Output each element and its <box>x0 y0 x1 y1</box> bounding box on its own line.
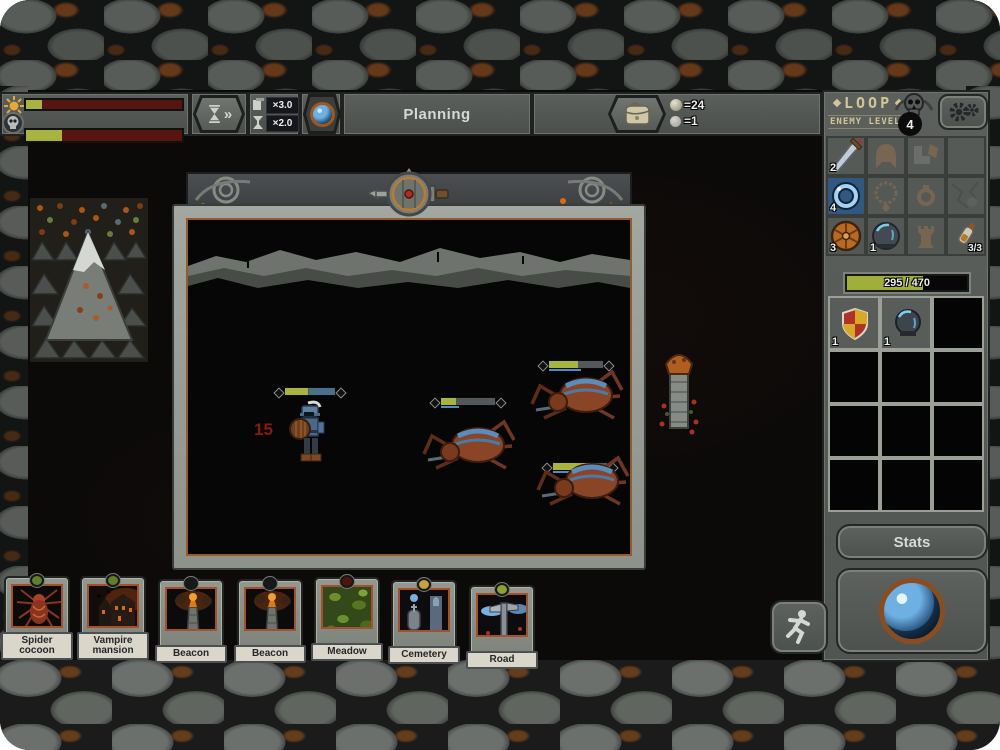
inventory-slot-empty <box>932 458 984 512</box>
mountain-silhouettes <box>188 230 630 294</box>
damage-number: 15 <box>254 420 273 440</box>
map-pillar-tile <box>656 344 702 438</box>
equip-slot-potion[interactable]: 3/3 <box>946 216 986 256</box>
card-name: Spider cocoon <box>1 632 73 660</box>
hp-bar: 295 / 470 <box>845 274 969 292</box>
inventory-slot-empty <box>828 350 880 404</box>
speed-toggle-button[interactable]: » <box>193 95 245 133</box>
time-rate-icon <box>253 116 263 129</box>
hero-health-bar <box>284 387 336 396</box>
gear-icon <box>946 100 980 124</box>
wing-ornament-left <box>192 176 256 204</box>
inventory-slot-empty <box>828 458 880 512</box>
card-rate-icon <box>252 98 264 111</box>
amulet-ghost-icon <box>868 178 904 214</box>
orb-icon <box>310 102 335 127</box>
kite-shield-icon <box>838 306 872 342</box>
card-beacon[interactable]: Beacon <box>237 579 303 663</box>
inventory-slot-shield[interactable]: 1 <box>828 296 880 350</box>
item-count: 3 <box>830 242 836 254</box>
sword-shield-emblem <box>366 166 452 222</box>
card-name: Meadow <box>311 643 383 661</box>
fast-forward-icon: » <box>224 106 230 123</box>
card-gem <box>106 574 120 587</box>
card-spider-cocoon[interactable]: Spider cocoon <box>4 576 70 660</box>
orb-resource-count: =24 <box>684 98 704 112</box>
inventory-slot-empty <box>880 458 932 512</box>
hourglass-icon <box>208 105 221 123</box>
item-count: 1 <box>832 336 838 348</box>
card-art <box>11 584 63 628</box>
hero-sprite <box>288 400 332 466</box>
enemy-level-label: ENEMY LEVEL <box>828 115 903 129</box>
game-screen: 15 <box>0 0 1000 750</box>
card-gem <box>30 574 44 587</box>
card-meadow[interactable]: Meadow <box>314 577 380 661</box>
pebble-resource-icon <box>670 116 681 127</box>
equip-slot-ghost-rook <box>906 216 946 256</box>
card-beacon[interactable]: Beacon <box>158 579 224 663</box>
retreat-button[interactable] <box>770 600 828 654</box>
hp-bar-text: 295 / 470 <box>847 276 967 290</box>
boots-ghost-icon <box>908 138 944 174</box>
enemy-level-value: 4 <box>906 117 913 132</box>
equip-slot-ring[interactable]: 4 <box>826 176 866 216</box>
rook-ghost-icon <box>908 218 944 254</box>
card-vampire-mansion[interactable]: Vampire mansion <box>80 576 146 660</box>
enemy-level-badge: 4 <box>898 112 922 136</box>
enemy-health-bar <box>440 397 496 406</box>
day-progress-bar <box>24 98 184 111</box>
settings-button[interactable] <box>938 94 988 130</box>
equip-slot-ghost-ring <box>906 176 946 216</box>
equip-slot-empty <box>946 136 986 176</box>
card-art <box>321 585 373 629</box>
hero-health-rest <box>309 388 335 395</box>
pebble-resource-count: =1 <box>684 114 698 128</box>
equip-slot-cracked <box>946 176 986 216</box>
equip-slot-ghost-helmet <box>866 136 906 176</box>
equip-slot-shield[interactable]: 3 <box>826 216 866 256</box>
card-gem <box>495 583 509 596</box>
item-count: 4 <box>830 202 836 214</box>
item-count: 2 <box>830 162 836 174</box>
battle-scene: 15 <box>186 218 632 556</box>
bag-icon <box>622 102 652 126</box>
potion-count: 3/3 <box>968 243 982 254</box>
diamond-decoration <box>833 99 841 107</box>
dark-helmet-icon <box>891 306 925 342</box>
inventory-slot-empty <box>932 350 984 404</box>
card-gem <box>340 575 354 588</box>
card-art <box>165 587 217 631</box>
inventory-slot-empty <box>880 350 932 404</box>
spider-sprite <box>528 362 624 424</box>
card-art <box>87 584 139 628</box>
inventory-slot-empty <box>932 296 984 350</box>
time-multiplier-value: ×2.0 <box>266 115 299 132</box>
card-gem <box>417 578 431 591</box>
loop-orb-button[interactable] <box>879 578 945 644</box>
card-name: Vampire mansion <box>77 632 149 660</box>
equip-slot-ghost-amulet <box>866 176 906 216</box>
card-name: Road <box>466 651 538 669</box>
card-cemetery[interactable]: Cemetery <box>391 580 457 664</box>
card-road[interactable]: Road <box>469 585 535 669</box>
pillar-dome <box>666 355 692 374</box>
cracked-stone-icon <box>948 178 984 214</box>
equip-slot-helmet[interactable]: 1 <box>866 216 906 256</box>
inventory-slot-empty <box>828 404 880 458</box>
running-man-icon <box>782 608 816 646</box>
spider-sprite <box>534 448 630 510</box>
stats-button[interactable]: Stats <box>836 524 988 560</box>
item-count: 1 <box>870 242 876 254</box>
card-gem <box>263 577 277 590</box>
orb-resource-icon <box>670 99 682 111</box>
card-multiplier-value: ×3.0 <box>266 97 299 114</box>
item-count: 1 <box>884 336 890 348</box>
map-mountain-tiles <box>30 198 148 362</box>
inventory-slot-helmet[interactable]: 1 <box>880 296 932 350</box>
planning-orb-button[interactable] <box>303 94 341 134</box>
ring-ghost-icon <box>908 178 944 214</box>
stone-border-top <box>0 0 1000 90</box>
phase-label: Planning <box>342 92 532 136</box>
spider-sprite <box>420 412 516 474</box>
equip-slot-ghost-boots <box>906 136 946 176</box>
loop-title: LOOP <box>834 94 902 112</box>
equip-slot-sword[interactable]: 2 <box>826 136 866 176</box>
inventory-slot-empty <box>880 404 932 458</box>
card-name: Beacon <box>155 645 227 663</box>
card-name: Beacon <box>234 645 306 663</box>
card-name: Cemetery <box>388 646 460 664</box>
supply-bag-button[interactable] <box>608 95 666 133</box>
inventory-slot-empty <box>932 404 984 458</box>
boss-progress-bar <box>24 128 184 143</box>
card-gem <box>184 577 198 590</box>
card-art <box>476 593 528 637</box>
boss-skull-icon <box>2 112 24 134</box>
stone-path-bottom <box>0 660 1000 750</box>
card-art <box>398 588 450 632</box>
card-art <box>244 587 296 631</box>
helmet-ghost-icon <box>868 138 904 174</box>
wing-ornament-right <box>562 176 626 204</box>
stats-button-label: Stats <box>894 534 931 551</box>
retreat-orb-panel <box>836 568 988 654</box>
